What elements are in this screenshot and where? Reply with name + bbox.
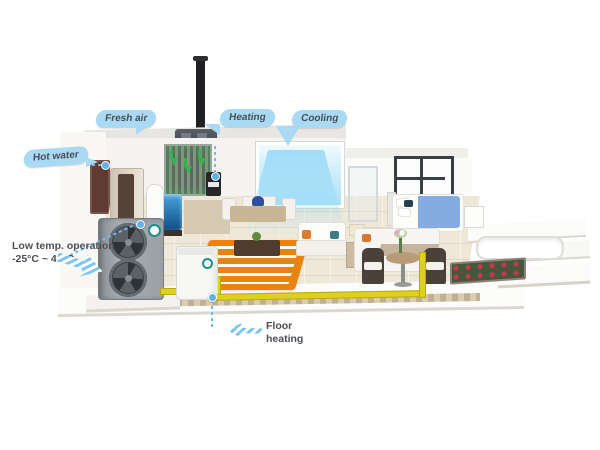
brand-logo-icon (148, 224, 161, 237)
patio-table (401, 262, 405, 284)
callout-line-floor-heating (211, 300, 213, 330)
glass-door (348, 166, 378, 222)
sofa-seat (296, 240, 348, 256)
window-mullion (420, 159, 423, 195)
water-pipe (419, 252, 426, 298)
callout-dot (136, 220, 145, 229)
chimney-cap (193, 56, 208, 61)
callout-dot (208, 293, 217, 302)
nightstand (464, 206, 484, 228)
callout-pointer (204, 124, 220, 135)
callout-pointer (86, 157, 98, 167)
callout-line-fresh-air (214, 146, 216, 172)
fresh-air-arrow-icon (170, 150, 178, 166)
callout-floor-heating: Floor heating (266, 320, 324, 346)
chair-cushion (426, 262, 444, 270)
heat-pump-house-illustration: Fresh air Heating Cooling Hot water Low … (0, 0, 600, 450)
brand-logo-icon (202, 258, 213, 269)
callout-dot (211, 172, 220, 181)
accent-pillow (404, 200, 413, 207)
patio-table-top (386, 252, 420, 264)
pillow (398, 207, 412, 217)
chair-cushion (364, 262, 382, 270)
callout-heating: Heating (219, 109, 276, 127)
fresh-air-arrow-icon (198, 150, 206, 166)
dining-table (230, 206, 286, 222)
sofa-cushion (330, 231, 339, 239)
hot-water-unit-panel (118, 174, 134, 224)
coffee-table (234, 240, 280, 256)
flower-vase (399, 236, 402, 253)
table-decor (252, 196, 264, 206)
bed-blanket (418, 196, 460, 228)
hydronic-unit-top (178, 248, 214, 255)
callout-pointer (136, 125, 150, 135)
callout-pointer (276, 126, 300, 146)
fresh-air-arrow-icon (184, 158, 192, 174)
flower-bloom (394, 229, 407, 238)
low-temp-line1: Low temp. operation (12, 240, 115, 253)
patio-table-base (394, 282, 412, 287)
fan-icon (109, 259, 147, 297)
striped-arrow-icon (226, 322, 263, 338)
bathtub (476, 236, 564, 260)
plant-decor (252, 232, 261, 241)
sofa-cushion (302, 230, 311, 239)
callout-dot (101, 161, 110, 170)
accent-pillow (362, 234, 371, 242)
